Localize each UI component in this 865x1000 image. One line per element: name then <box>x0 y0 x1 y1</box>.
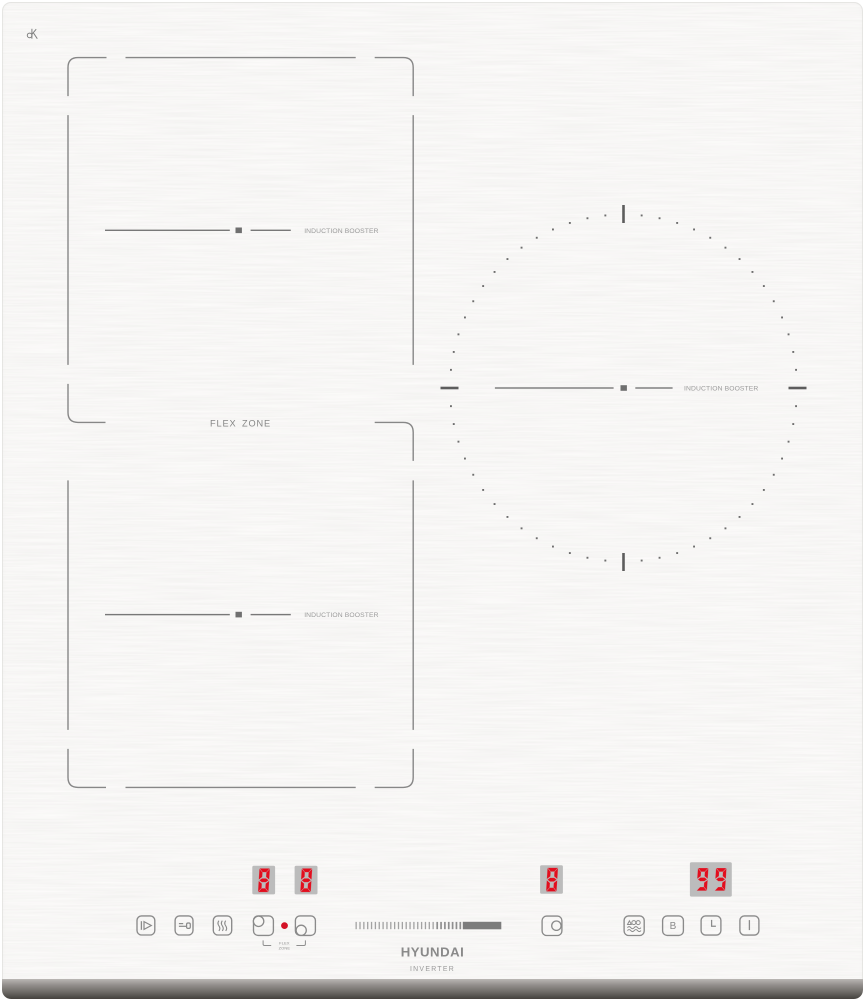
svg-text:B: B <box>670 921 677 932</box>
svg-text:FLEX ZONE: FLEX ZONE <box>210 418 271 428</box>
svg-text:INDUCTION BOOSTER: INDUCTION BOOSTER <box>684 386 758 393</box>
svg-text:INDUCTION BOOSTER: INDUCTION BOOSTER <box>304 612 378 619</box>
svg-text:HYUNDAI: HYUNDAI <box>401 945 465 960</box>
svg-text:INVERTER: INVERTER <box>410 966 455 973</box>
svg-text:ZONE: ZONE <box>279 945 291 950</box>
svg-text:INDUCTION BOOSTER: INDUCTION BOOSTER <box>304 228 378 235</box>
